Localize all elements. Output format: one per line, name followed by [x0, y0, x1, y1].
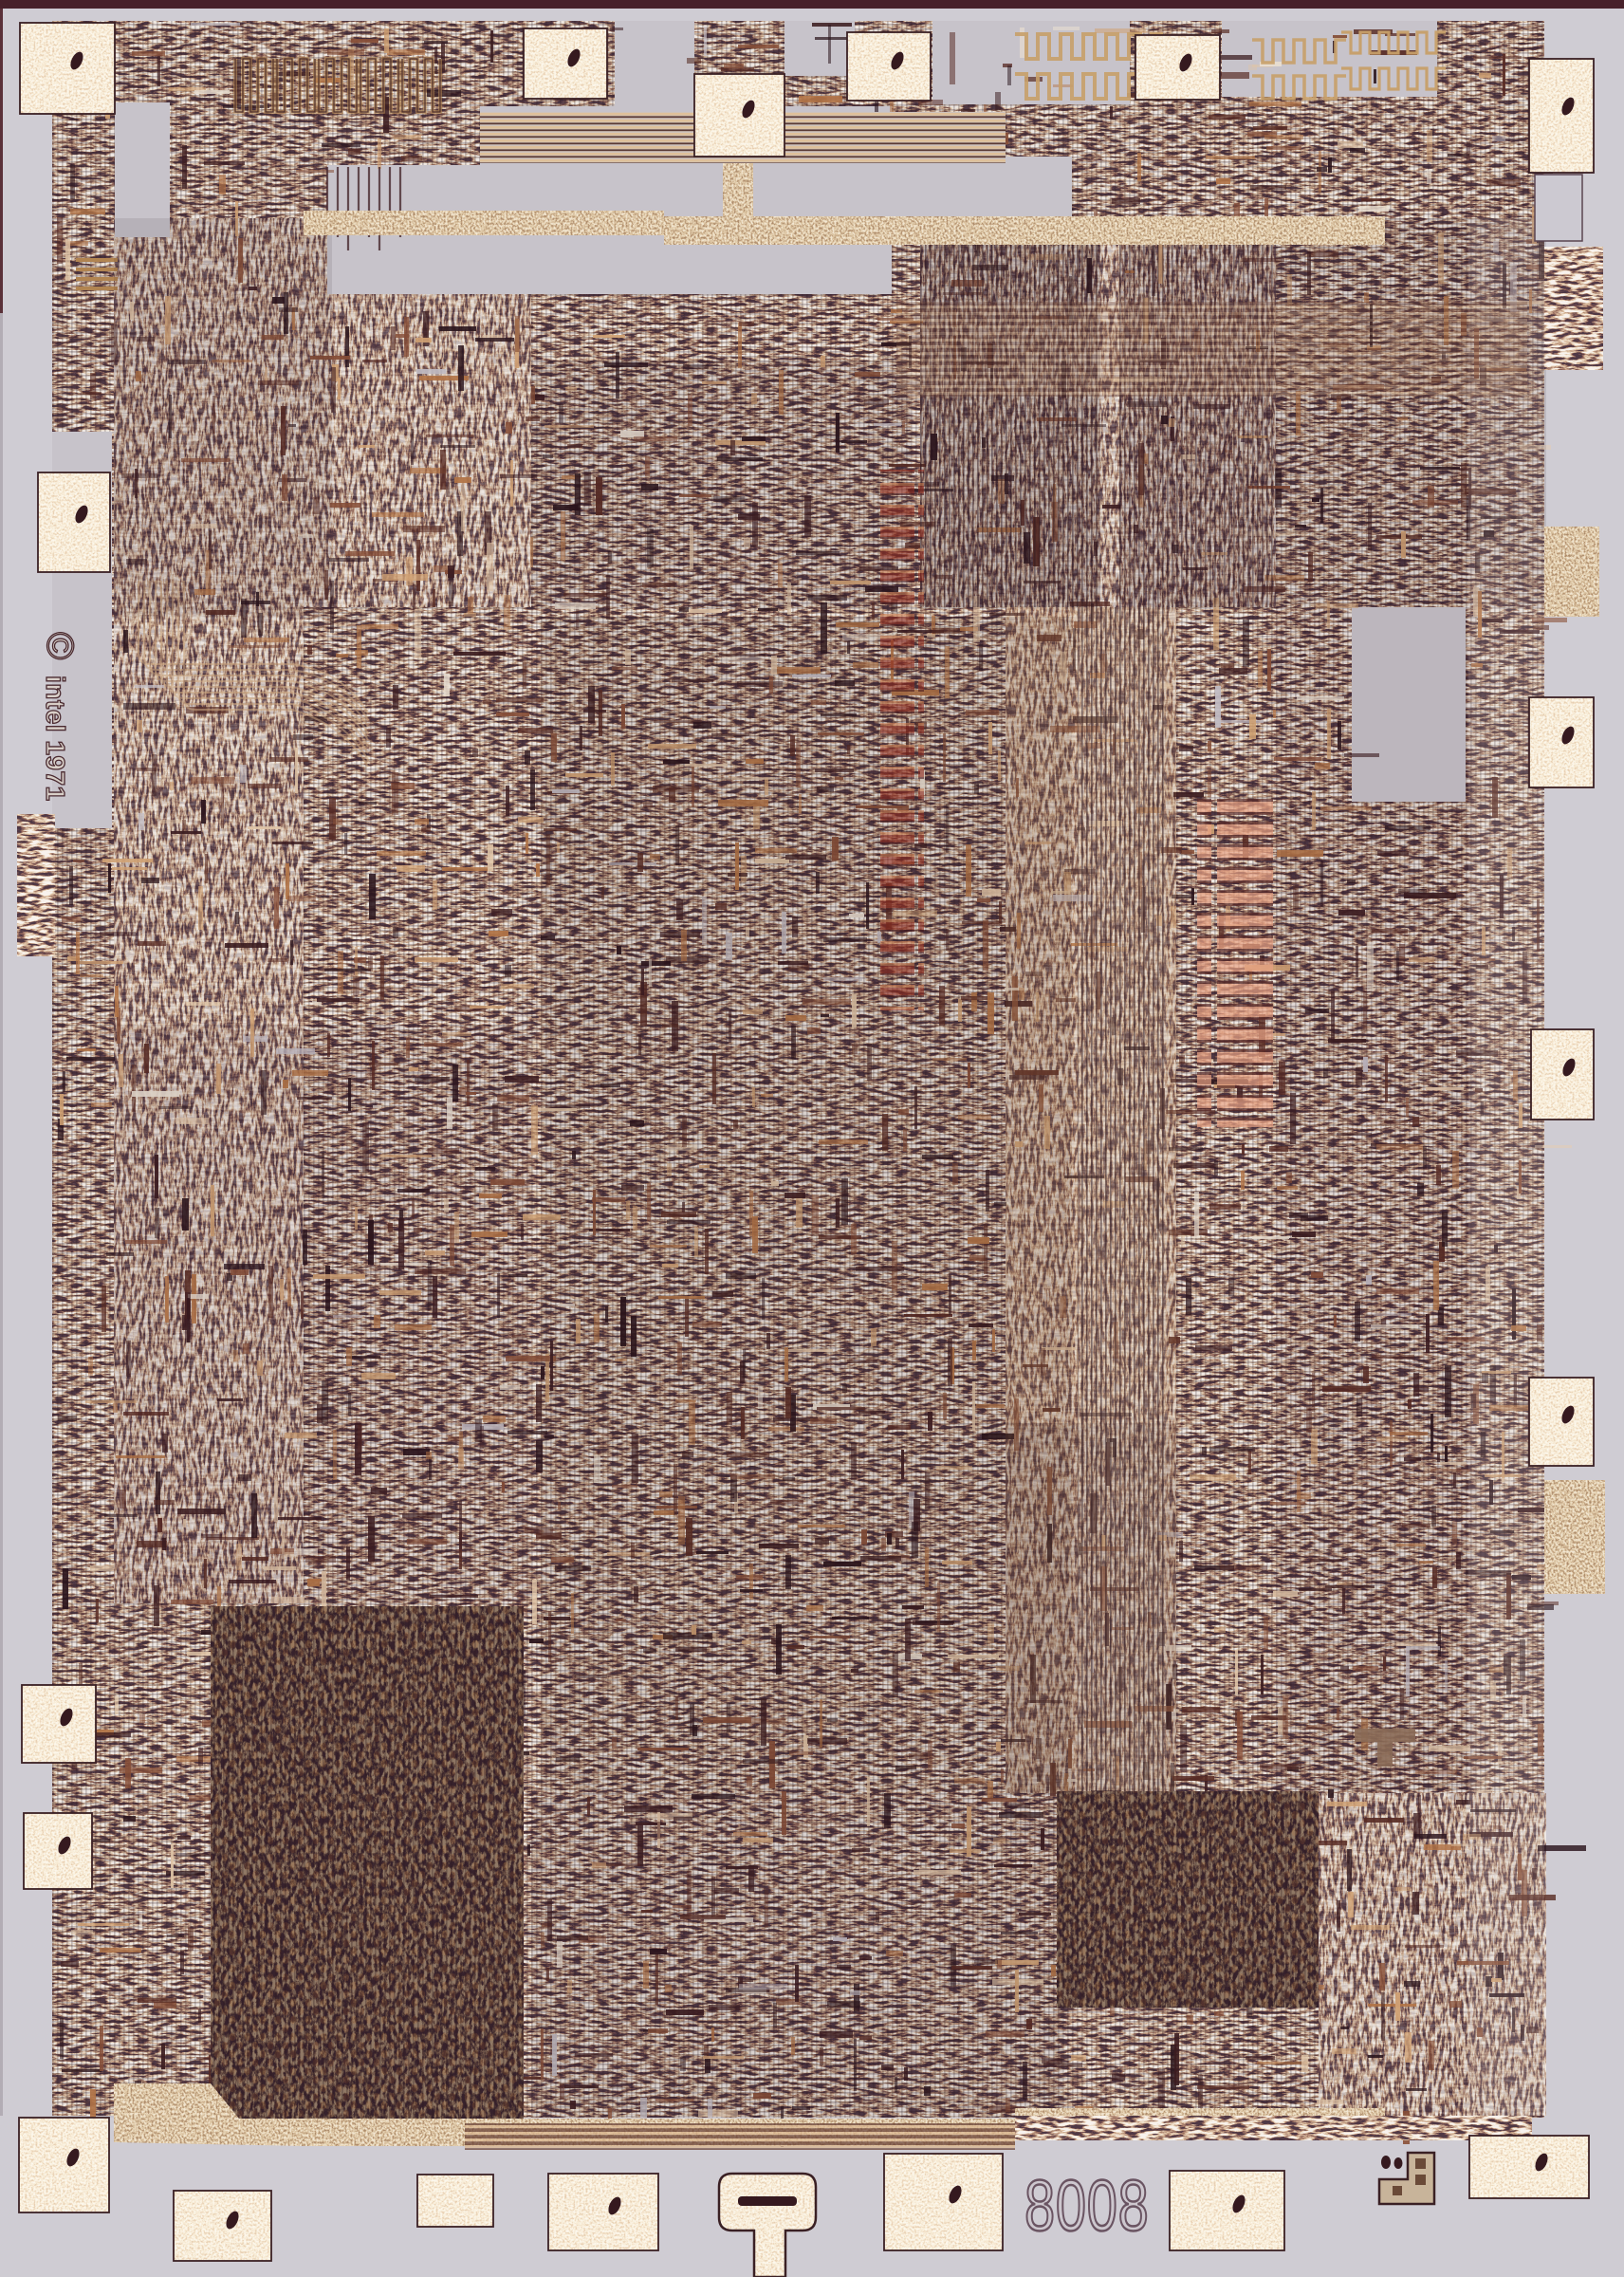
svg-text:©: © [39, 632, 81, 659]
svg-text:8008: 8008 [1024, 2166, 1150, 2246]
svg-text:intel 1971: intel 1971 [41, 676, 70, 802]
